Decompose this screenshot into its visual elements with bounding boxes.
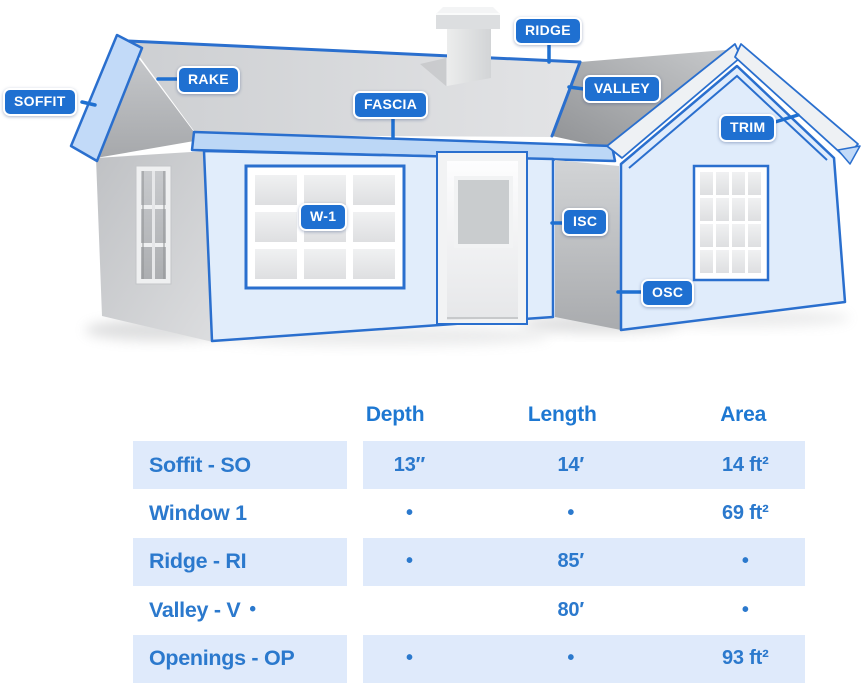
row-label: Window 1	[133, 489, 347, 537]
side-window	[136, 166, 171, 284]
table-row: Valley - V • 80′ •	[133, 586, 805, 634]
depth-value: 13″	[363, 454, 456, 477]
col-header-depth: Depth	[347, 403, 443, 427]
callout-fascia: FASCIA	[353, 91, 428, 119]
row-label: Openings - OP	[133, 635, 347, 683]
callout-isc: ISC	[562, 208, 608, 236]
callout-w1: W-1	[299, 203, 347, 231]
row-label-dot: •	[249, 599, 255, 621]
right-rake-tip	[838, 146, 860, 164]
measurements-table: Soffit - SO 13″ 14′ 14 ft² Window 1 • • …	[133, 441, 805, 683]
callout-ridge: RIDGE	[514, 17, 582, 45]
row-label: Soffit - SO	[133, 441, 347, 489]
callout-trim: TRIM	[719, 114, 776, 142]
depth-value: •	[363, 550, 456, 573]
callout-osc: OSC	[641, 279, 694, 307]
length-value: 85′	[456, 550, 686, 573]
length-value: •	[456, 502, 686, 525]
house-measurements-page: SOFFIT RAKE FASCIA RIDGE VALLEY TRIM W-1…	[0, 0, 866, 690]
col-header-area: Area	[681, 403, 805, 427]
table-row: Ridge - RI • 85′ •	[133, 538, 805, 586]
row-values: 80′ •	[363, 586, 805, 634]
callout-soffit: SOFFIT	[3, 88, 77, 116]
row-values: 13″ 14′ 14 ft²	[363, 441, 805, 489]
house-illustration	[0, 0, 866, 382]
row-label: Valley - V •	[133, 586, 347, 634]
row-label-text: Valley - V	[149, 598, 240, 623]
table-row: Window 1 • • 69 ft²	[133, 489, 805, 537]
table-row: Soffit - SO 13″ 14′ 14 ft²	[133, 441, 805, 489]
table-header: Depth Length Area	[347, 403, 805, 427]
chimney	[420, 7, 500, 86]
length-value: •	[456, 647, 686, 670]
col-header-length: Length	[443, 403, 681, 427]
row-label: Ridge - RI	[133, 538, 347, 586]
depth-value: •	[363, 647, 456, 670]
corner-wall	[555, 160, 621, 330]
row-values: • • 69 ft²	[363, 489, 805, 537]
length-value: 14′	[456, 454, 686, 477]
callout-valley: VALLEY	[583, 75, 661, 103]
door	[437, 152, 527, 324]
right-window	[694, 166, 768, 280]
callout-rake: RAKE	[177, 66, 240, 94]
depth-value: •	[363, 502, 456, 525]
area-value: •	[686, 599, 805, 622]
table-row: Openings - OP • • 93 ft²	[133, 635, 805, 683]
row-values: • 85′ •	[363, 538, 805, 586]
area-value: •	[686, 550, 805, 573]
row-values: • • 93 ft²	[363, 635, 805, 683]
area-value: 93 ft²	[686, 647, 805, 670]
area-value: 14 ft²	[686, 454, 805, 477]
area-value: 69 ft²	[686, 502, 805, 525]
length-value: 80′	[456, 599, 686, 622]
